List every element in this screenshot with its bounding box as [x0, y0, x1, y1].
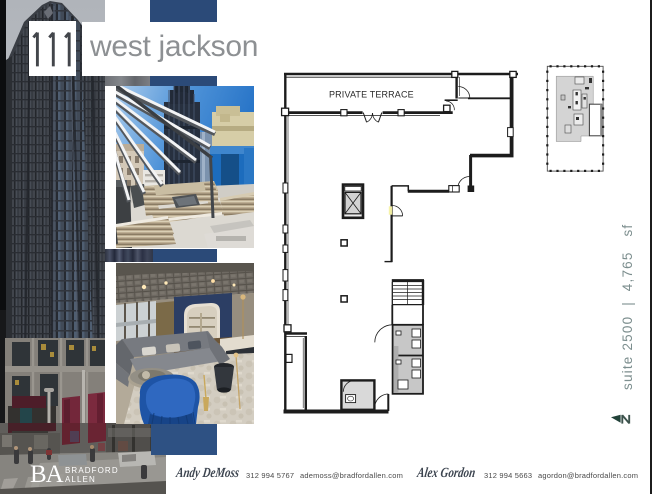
svg-text:PRIVATE TERRACE: PRIVATE TERRACE [329, 90, 414, 100]
